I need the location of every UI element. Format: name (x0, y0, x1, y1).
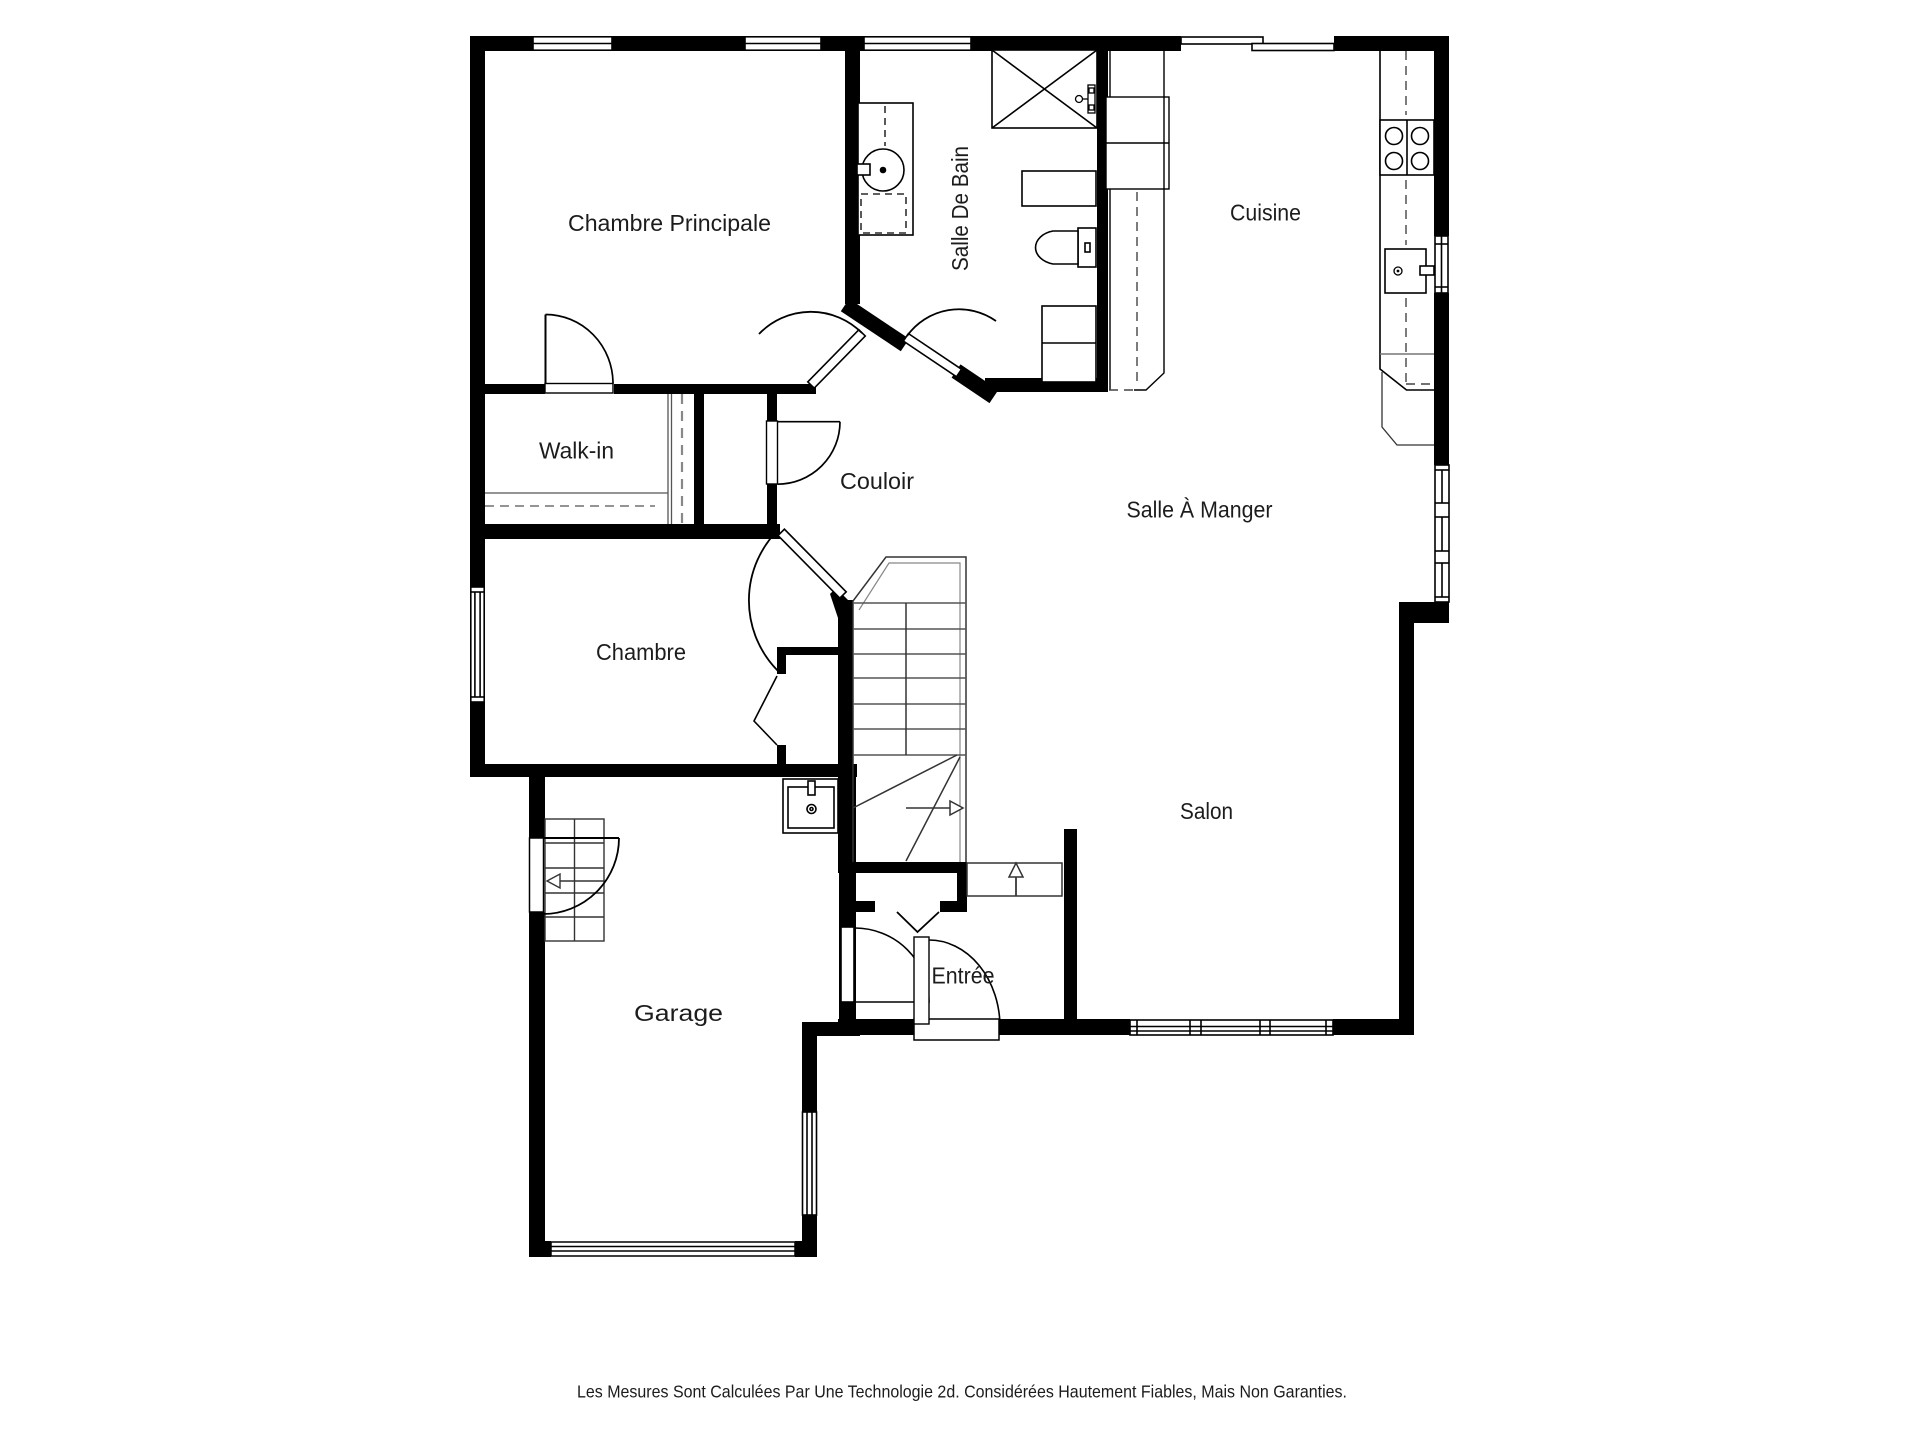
svg-text:Salon: Salon (1180, 798, 1233, 824)
svg-text:Les Mesures Sont Calculées Par: Les Mesures Sont Calculées Par Une Techn… (577, 1382, 1347, 1402)
svg-text:Salle À Manger: Salle À Manger (1127, 497, 1273, 523)
svg-text:Cuisine: Cuisine (1230, 200, 1301, 226)
svg-text:Entrée: Entrée (932, 963, 995, 989)
svg-text:Garage: Garage (634, 1000, 723, 1026)
svg-text:Chambre: Chambre (596, 639, 686, 665)
svg-text:Chambre Principale: Chambre Principale (568, 210, 771, 236)
svg-text:Salle De Bain: Salle De Bain (947, 146, 973, 271)
svg-text:Couloir: Couloir (840, 468, 914, 494)
svg-text:Walk-in: Walk-in (539, 438, 614, 464)
